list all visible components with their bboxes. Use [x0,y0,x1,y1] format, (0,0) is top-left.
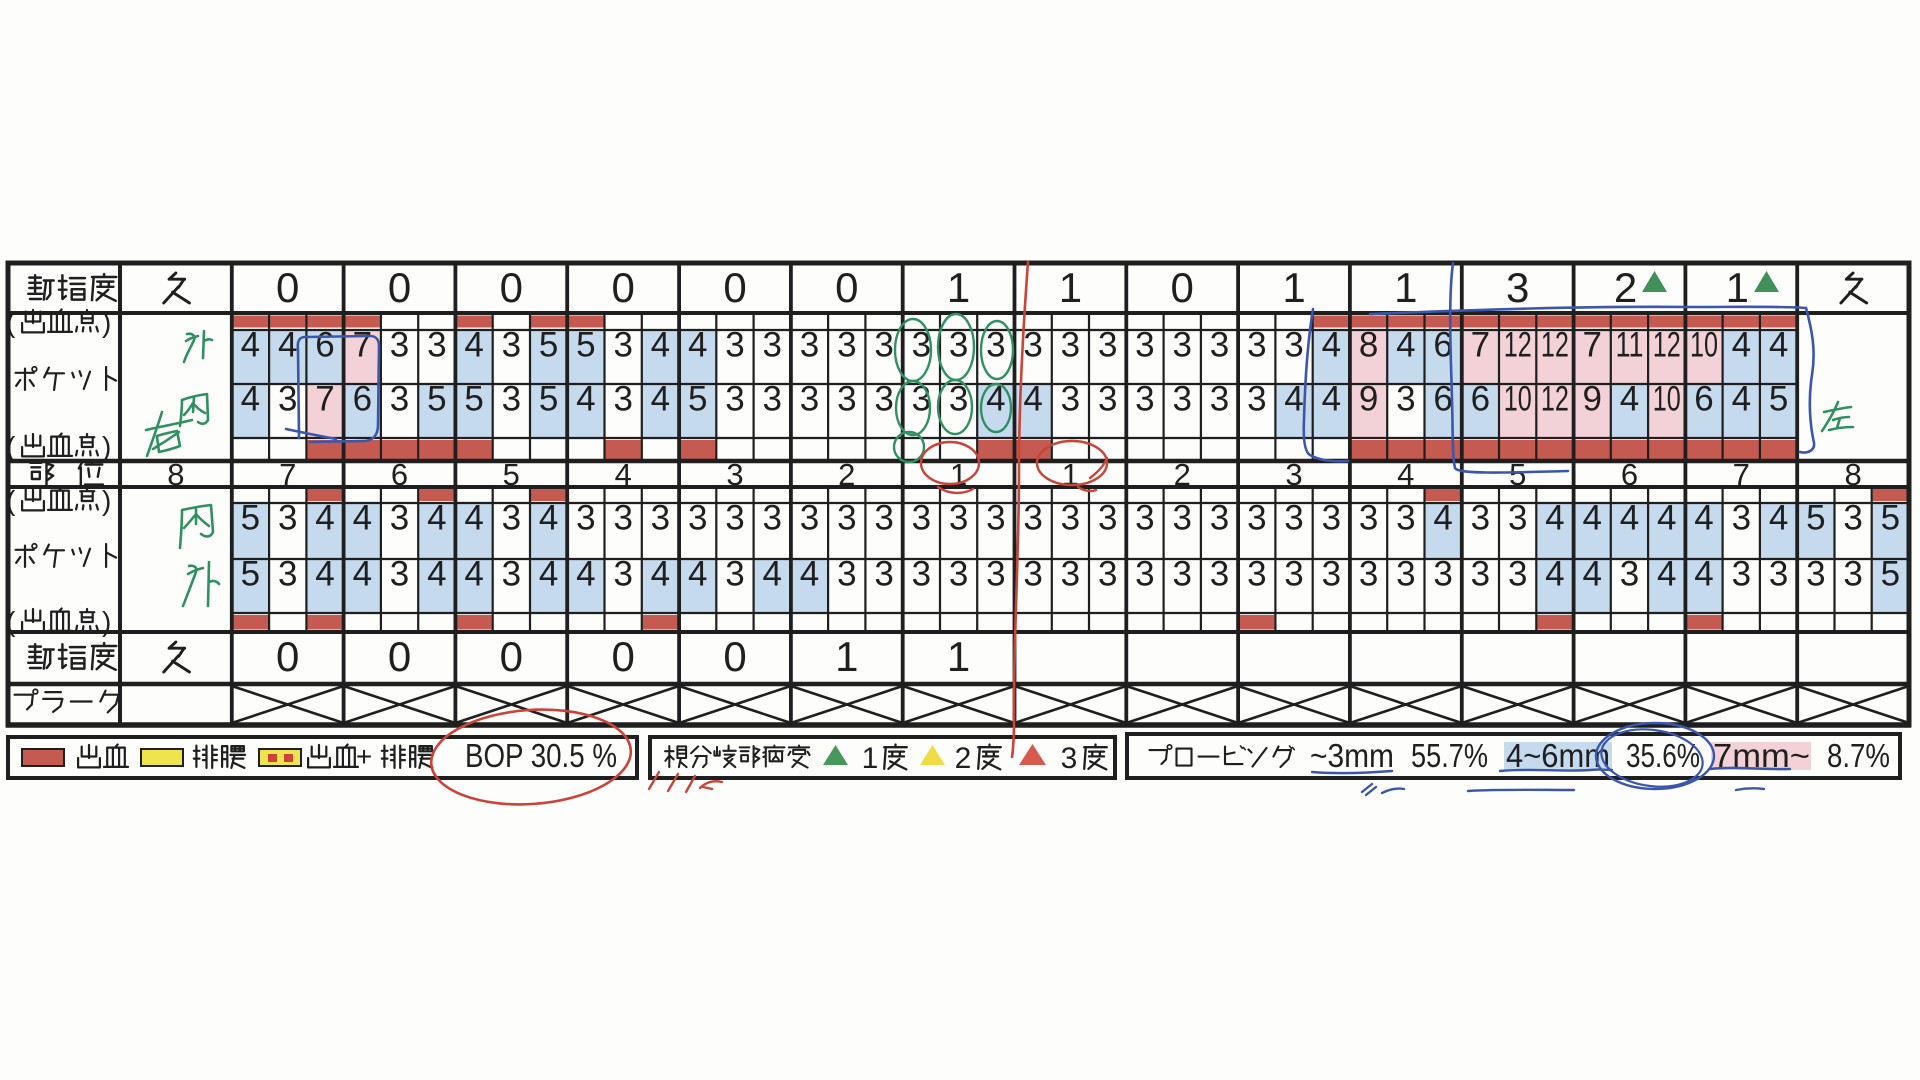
svg-text:3: 3 [949,555,968,594]
svg-text:3: 3 [1433,555,1452,594]
svg-text:3: 3 [278,380,297,419]
svg-text:4: 4 [1433,499,1452,538]
svg-text:0: 0 [500,264,523,311]
svg-text:6: 6 [1694,380,1713,419]
svg-text:1: 1 [1726,264,1749,311]
svg-text:3: 3 [800,326,819,365]
svg-text:4: 4 [1322,326,1341,365]
svg-text:4: 4 [1769,326,1788,365]
svg-text:2: 2 [1174,457,1191,492]
svg-text:5: 5 [241,555,260,594]
svg-text:~3mm: ~3mm [1310,737,1394,774]
svg-text:4: 4 [1396,326,1415,365]
svg-text:3: 3 [613,380,632,419]
svg-text:12: 12 [1541,380,1569,419]
svg-text:7: 7 [315,380,334,419]
svg-text:4: 4 [688,326,707,365]
svg-text:4: 4 [1545,499,1564,538]
svg-text:): ) [102,485,111,516]
svg-text:3: 3 [651,499,670,538]
svg-text:8.7%: 8.7% [1827,737,1890,774]
svg-text:4: 4 [464,499,483,538]
svg-text:): ) [102,606,111,637]
svg-text:3: 3 [1843,499,1862,538]
svg-text:4: 4 [1620,380,1639,419]
svg-text:4: 4 [651,326,670,365]
svg-text:4: 4 [1023,380,1042,419]
svg-text:0: 0 [1171,264,1194,311]
svg-text:3: 3 [1135,380,1154,419]
svg-text:4: 4 [464,326,483,365]
svg-text:3: 3 [1023,326,1042,365]
svg-text:3: 3 [278,555,297,594]
svg-text:7: 7 [1471,326,1490,365]
svg-text:3: 3 [1359,555,1378,594]
svg-text:3: 3 [390,326,409,365]
svg-text:4: 4 [315,555,334,594]
svg-text:4: 4 [1732,326,1751,365]
svg-text:5: 5 [1806,499,1825,538]
svg-text:4: 4 [1582,499,1601,538]
svg-text:4: 4 [1397,457,1414,492]
svg-text:3: 3 [613,326,632,365]
svg-text:4: 4 [241,326,260,365]
svg-text:4: 4 [615,457,632,492]
svg-text:3: 3 [613,555,632,594]
svg-text:1: 1 [1394,264,1417,311]
svg-text:4: 4 [1284,380,1303,419]
svg-text:3: 3 [1098,555,1117,594]
svg-text:7: 7 [279,457,296,492]
svg-text:BOP 30.5 %: BOP 30.5 % [465,737,617,774]
svg-text:3: 3 [1023,499,1042,538]
svg-text:1: 1 [1062,457,1079,492]
svg-text:2: 2 [955,742,972,775]
svg-text:1: 1 [950,457,967,492]
svg-text:1: 1 [1059,264,1082,311]
svg-text:3: 3 [912,555,931,594]
svg-text:(: ( [6,485,16,516]
svg-text:0: 0 [723,633,746,680]
svg-text:3: 3 [1732,555,1751,594]
svg-text:1: 1 [947,633,970,680]
svg-text:11: 11 [1616,326,1644,365]
svg-text:7: 7 [353,326,372,365]
svg-text:3: 3 [1359,499,1378,538]
svg-text:+: + [356,741,372,772]
svg-text:3: 3 [1210,499,1229,538]
svg-text:55.7%: 55.7% [1411,737,1488,774]
svg-text:6: 6 [353,380,372,419]
svg-text:3: 3 [949,499,968,538]
svg-text:): ) [102,307,111,338]
svg-text:3: 3 [390,499,409,538]
svg-text:): ) [102,431,111,462]
svg-text:3: 3 [1135,499,1154,538]
svg-text:4: 4 [1694,499,1713,538]
svg-text:5: 5 [1769,380,1788,419]
svg-text:4: 4 [762,555,781,594]
svg-text:5: 5 [464,380,483,419]
svg-text:3: 3 [1247,326,1266,365]
svg-text:4: 4 [576,380,595,419]
svg-text:0: 0 [388,264,411,311]
svg-text:2: 2 [838,457,855,492]
svg-text:4~6mm: 4~6mm [1506,737,1610,774]
svg-text:4: 4 [278,326,297,365]
svg-text:0: 0 [612,633,635,680]
svg-text:3: 3 [1285,457,1302,492]
svg-text:5: 5 [688,380,707,419]
svg-text:3: 3 [874,380,893,419]
svg-text:3: 3 [874,326,893,365]
svg-text:3: 3 [1506,264,1529,311]
svg-text:4: 4 [353,555,372,594]
svg-text:12: 12 [1653,326,1681,365]
svg-text:4: 4 [1545,555,1564,594]
svg-text:10: 10 [1504,380,1532,419]
svg-text:0: 0 [835,264,858,311]
svg-text:4: 4 [651,555,670,594]
svg-text:5: 5 [241,499,260,538]
svg-text:3: 3 [1023,555,1042,594]
svg-text:3: 3 [1284,499,1303,538]
svg-text:3: 3 [725,499,744,538]
svg-text:4: 4 [1657,499,1676,538]
svg-text:4: 4 [1732,380,1751,419]
svg-text:3: 3 [800,380,819,419]
svg-text:3: 3 [1508,555,1527,594]
svg-text:3: 3 [762,326,781,365]
svg-text:3: 3 [1061,499,1080,538]
svg-text:0: 0 [388,633,411,680]
svg-text:4: 4 [539,555,558,594]
svg-text:3: 3 [986,499,1005,538]
svg-text:3: 3 [278,499,297,538]
svg-text:3: 3 [874,499,893,538]
svg-text:10: 10 [1653,380,1681,419]
svg-text:(: ( [6,431,16,462]
svg-text:3: 3 [1061,326,1080,365]
svg-text:3: 3 [427,326,446,365]
svg-text:0: 0 [276,633,299,680]
svg-text:4: 4 [1657,555,1676,594]
svg-text:1: 1 [862,742,879,775]
svg-text:4: 4 [315,499,334,538]
svg-text:3: 3 [1210,380,1229,419]
svg-text:0: 0 [500,633,523,680]
svg-text:10: 10 [1690,326,1718,365]
svg-text:3: 3 [1061,742,1078,775]
svg-text:7: 7 [1733,457,1750,492]
svg-text:3: 3 [576,499,595,538]
svg-text:3: 3 [837,555,856,594]
svg-text:3: 3 [986,555,1005,594]
svg-text:3: 3 [837,499,856,538]
svg-text:3: 3 [1284,326,1303,365]
svg-text:8: 8 [1359,326,1378,365]
svg-text:4: 4 [1582,555,1601,594]
svg-text:3: 3 [725,326,744,365]
svg-text:0: 0 [612,264,635,311]
svg-text:3: 3 [390,380,409,419]
svg-text:1: 1 [1282,264,1305,311]
svg-text:3: 3 [1471,555,1490,594]
svg-text:8: 8 [1844,457,1861,492]
svg-text:3: 3 [800,499,819,538]
svg-text:3: 3 [725,380,744,419]
svg-text:3: 3 [1396,555,1415,594]
svg-text:3: 3 [912,499,931,538]
svg-text:2: 2 [1614,264,1637,311]
svg-text:3: 3 [1769,555,1788,594]
svg-text:6: 6 [391,457,408,492]
svg-text:4: 4 [353,499,372,538]
svg-text:6: 6 [1621,457,1638,492]
svg-text:5: 5 [539,380,558,419]
svg-text:3: 3 [1396,499,1415,538]
svg-text:3: 3 [1098,326,1117,365]
svg-text:3: 3 [1620,555,1639,594]
svg-text:3: 3 [1098,380,1117,419]
svg-text:3: 3 [1061,555,1080,594]
svg-text:5: 5 [1881,555,1900,594]
svg-text:1: 1 [947,264,970,311]
svg-text:3: 3 [1210,555,1229,594]
svg-text:3: 3 [1098,499,1117,538]
svg-text:6: 6 [315,326,334,365]
svg-text:5: 5 [1881,499,1900,538]
svg-text:3: 3 [1172,499,1191,538]
svg-text:4: 4 [576,555,595,594]
svg-text:3: 3 [837,380,856,419]
svg-text:5: 5 [1509,457,1526,492]
svg-text:4: 4 [1769,499,1788,538]
svg-text:3: 3 [837,326,856,365]
svg-text:3: 3 [1843,555,1862,594]
svg-text:3: 3 [502,326,521,365]
svg-text:3: 3 [390,555,409,594]
svg-text:3: 3 [1210,326,1229,365]
svg-text:3: 3 [1508,499,1527,538]
svg-text:3: 3 [726,457,743,492]
svg-text:3: 3 [1247,555,1266,594]
svg-text:3: 3 [1172,326,1191,365]
svg-text:3: 3 [1172,555,1191,594]
svg-text:7: 7 [1582,326,1601,365]
svg-text:4: 4 [800,555,819,594]
svg-text:1: 1 [835,633,858,680]
svg-text:3: 3 [1061,380,1080,419]
svg-text:4: 4 [688,555,707,594]
svg-text:3: 3 [502,499,521,538]
svg-text:6: 6 [1433,380,1452,419]
svg-text:3: 3 [1471,499,1490,538]
svg-text:3: 3 [1135,326,1154,365]
svg-text:5: 5 [539,326,558,365]
svg-text:3: 3 [1396,380,1415,419]
svg-text:3: 3 [1322,555,1341,594]
svg-text:9: 9 [1359,380,1378,419]
svg-text:3: 3 [1806,555,1825,594]
svg-text:3: 3 [725,555,744,594]
svg-text:9: 9 [1582,380,1601,419]
svg-text:3: 3 [1172,380,1191,419]
svg-text:4: 4 [427,555,446,594]
svg-text:12: 12 [1541,326,1569,365]
svg-text:(: ( [6,307,16,338]
svg-text:8: 8 [167,457,184,492]
svg-text:3: 3 [986,326,1005,365]
svg-text:0: 0 [276,264,299,311]
svg-text:0: 0 [723,264,746,311]
svg-text:3: 3 [1322,499,1341,538]
svg-text:4: 4 [464,555,483,594]
svg-text:3: 3 [613,499,632,538]
svg-text:4: 4 [651,380,670,419]
svg-text:3: 3 [1247,499,1266,538]
svg-text:(: ( [6,606,16,637]
svg-text:4: 4 [1322,380,1341,419]
svg-text:3: 3 [502,555,521,594]
svg-text:3: 3 [762,499,781,538]
svg-text:4: 4 [1620,499,1639,538]
svg-text:3: 3 [502,380,521,419]
svg-text:4: 4 [539,499,558,538]
svg-text:3: 3 [762,380,781,419]
svg-text:3: 3 [1284,555,1303,594]
svg-text:5: 5 [427,380,446,419]
svg-text:12: 12 [1504,326,1532,365]
svg-text:3: 3 [1247,380,1266,419]
svg-text:6: 6 [1471,380,1490,419]
svg-text:3: 3 [688,499,707,538]
svg-text:3: 3 [874,555,893,594]
svg-text:5: 5 [576,326,595,365]
svg-text:3: 3 [1135,555,1154,594]
svg-text:3: 3 [949,326,968,365]
svg-text:4: 4 [427,499,446,538]
svg-text:5: 5 [503,457,520,492]
svg-text:4: 4 [241,380,260,419]
svg-text:4: 4 [1694,555,1713,594]
svg-text:3: 3 [1732,499,1751,538]
